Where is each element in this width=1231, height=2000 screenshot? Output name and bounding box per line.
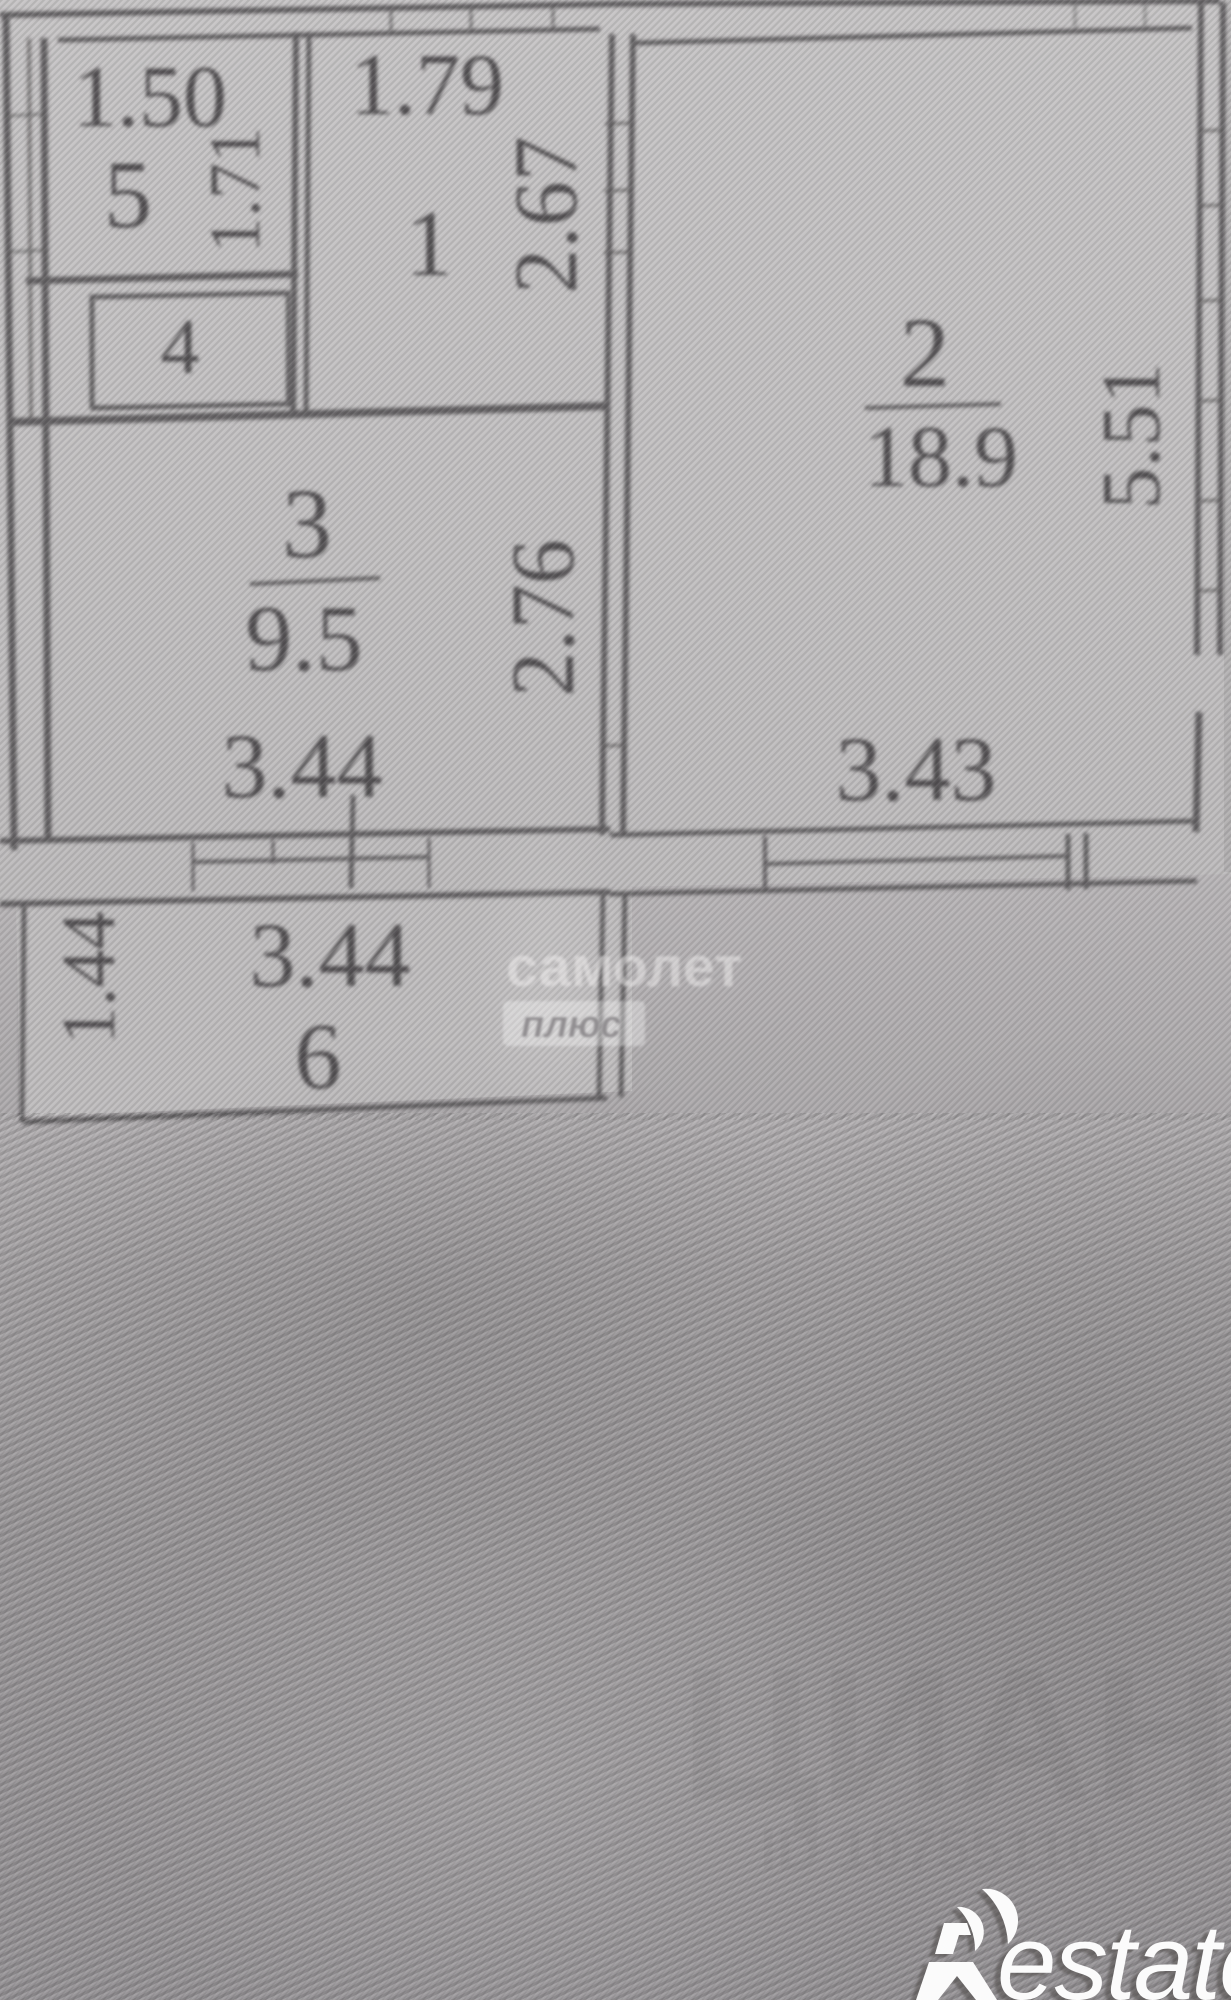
svg-text:самолет: самолет: [506, 935, 743, 999]
svg-text:estate: estate: [997, 1902, 1231, 2000]
svg-text:ЦИАН: ЦИАН: [680, 1629, 1230, 1841]
svg-text:ID 10755110: ID 10755110: [760, 1816, 1100, 1883]
svg-text:плюс: плюс: [521, 1004, 621, 1046]
